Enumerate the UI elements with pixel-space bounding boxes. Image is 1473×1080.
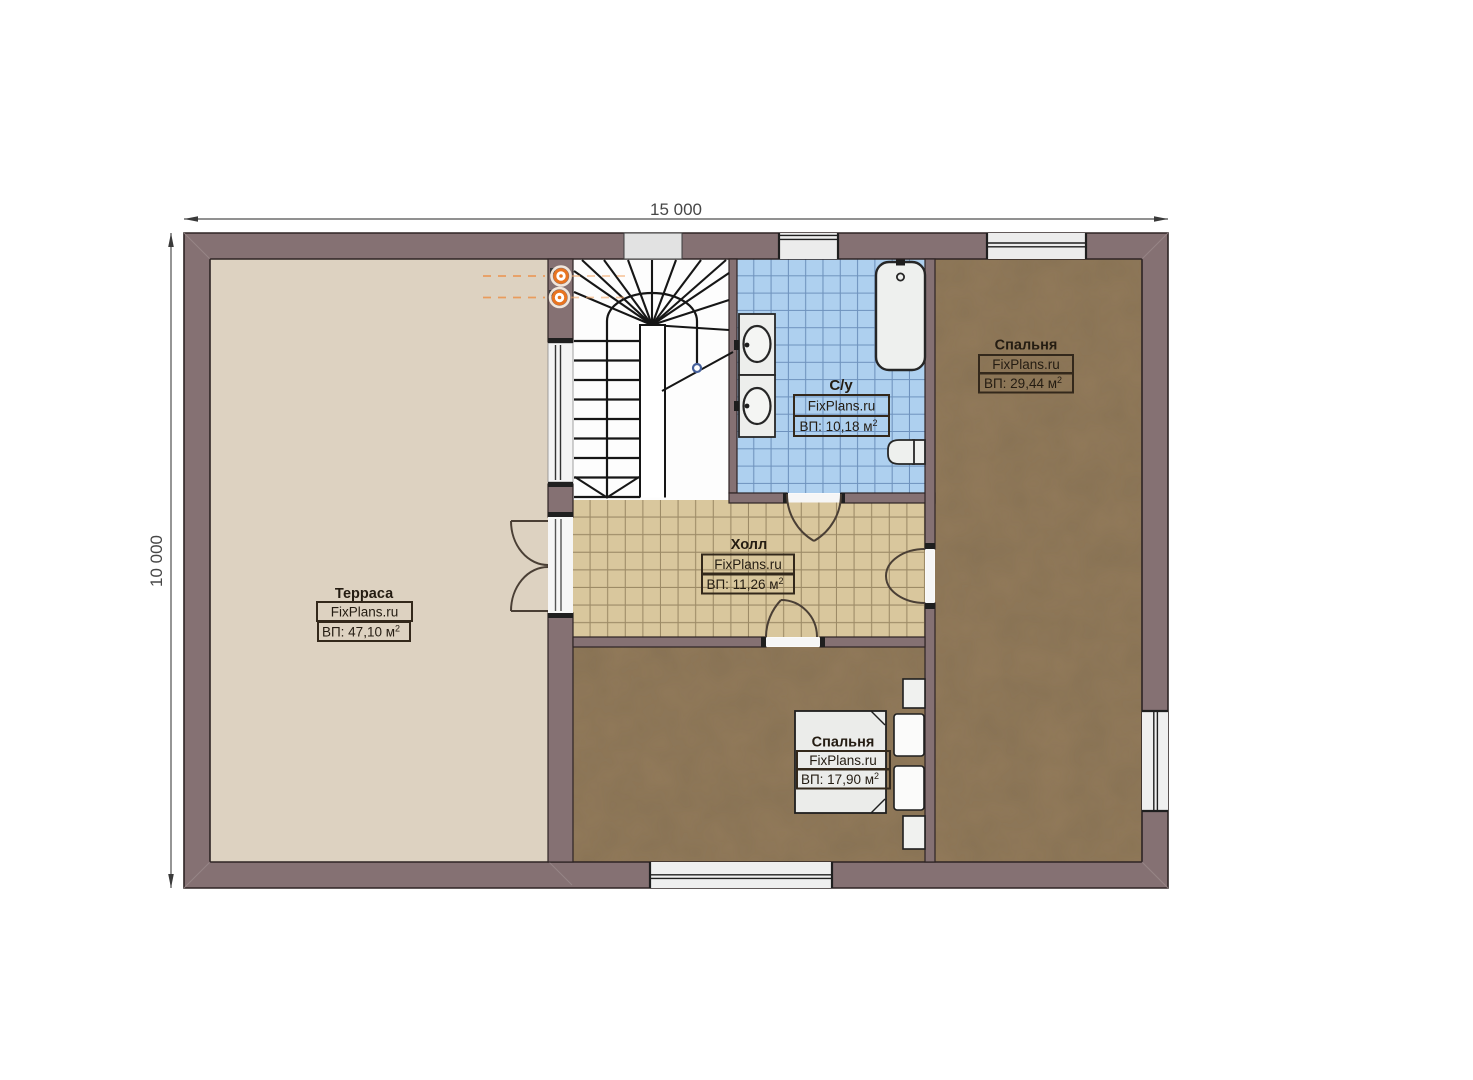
- svg-text:FixPlans.ru: FixPlans.ru: [331, 605, 399, 620]
- svg-text:ВП: 17,90 м2: ВП: 17,90 м2: [801, 771, 879, 787]
- svg-text:FixPlans.ru: FixPlans.ru: [808, 399, 876, 414]
- svg-text:Спальня: Спальня: [995, 338, 1058, 354]
- svg-text:ВП: 10,18 м2: ВП: 10,18 м2: [799, 418, 877, 434]
- svg-text:FixPlans.ru: FixPlans.ru: [809, 753, 877, 768]
- svg-text:ВП: 47,10 м2: ВП: 47,10 м2: [322, 624, 400, 640]
- svg-text:FixPlans.ru: FixPlans.ru: [992, 357, 1060, 372]
- svg-text:10 000: 10 000: [147, 535, 166, 587]
- svg-text:ВП: 29,44 м2: ВП: 29,44 м2: [984, 375, 1062, 391]
- svg-text:FixPlans.ru: FixPlans.ru: [714, 557, 782, 572]
- svg-text:Спальня: Спальня: [812, 735, 875, 751]
- svg-text:С/у: С/у: [829, 377, 853, 394]
- svg-text:ВП: 11,26 м2: ВП: 11,26 м2: [706, 576, 783, 592]
- svg-text:Терраса: Терраса: [335, 586, 394, 602]
- svg-text:Холл: Холл: [731, 537, 767, 553]
- svg-text:15 000: 15 000: [650, 200, 702, 219]
